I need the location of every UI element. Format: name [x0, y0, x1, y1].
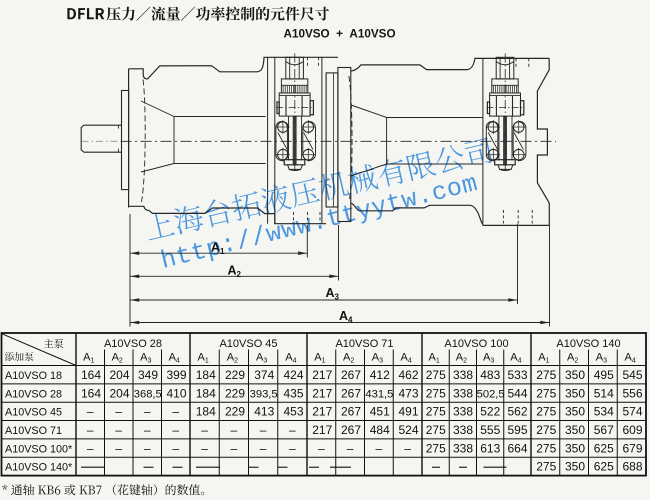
svg-text:275: 275: [536, 423, 556, 437]
svg-text:688: 688: [622, 460, 642, 474]
svg-text:338: 338: [453, 441, 473, 455]
svg-text:A10VSO 45: A10VSO 45: [219, 338, 277, 350]
svg-text:399: 399: [166, 368, 186, 382]
svg-text:–: –: [172, 423, 179, 437]
svg-text:217: 217: [312, 423, 332, 437]
svg-text:–: –: [115, 441, 122, 455]
svg-text:613: 613: [480, 441, 500, 455]
svg-text:A10VSO 18: A10VSO 18: [5, 370, 62, 382]
svg-text:483: 483: [480, 368, 500, 382]
svg-text:–: –: [318, 441, 325, 455]
svg-text:A10VSO + A10VSO: A10VSO + A10VSO: [284, 27, 396, 40]
svg-text:–: –: [115, 423, 122, 437]
svg-text:229: 229: [225, 386, 245, 400]
svg-text:A10VSO 45: A10VSO 45: [5, 407, 62, 419]
svg-text:–: –: [87, 405, 94, 419]
svg-text:204: 204: [109, 386, 129, 400]
svg-text:555: 555: [480, 423, 500, 437]
svg-text:413: 413: [254, 405, 274, 419]
svg-text:184: 184: [196, 405, 216, 419]
svg-text:453: 453: [283, 405, 303, 419]
svg-text:350: 350: [565, 386, 585, 400]
svg-text:451: 451: [370, 405, 390, 419]
svg-text:349: 349: [138, 368, 158, 382]
svg-text:267: 267: [341, 423, 361, 437]
svg-text:–: –: [231, 423, 238, 437]
svg-text:–: –: [404, 441, 411, 455]
svg-text:–: –: [376, 441, 383, 455]
svg-text:556: 556: [622, 386, 642, 400]
svg-text:–: –: [260, 441, 267, 455]
svg-text:424: 424: [283, 368, 303, 382]
svg-text:514: 514: [594, 386, 614, 400]
svg-text:217: 217: [312, 368, 332, 382]
svg-text:484: 484: [370, 423, 390, 437]
svg-text:–: –: [201, 441, 208, 455]
svg-text:–: –: [87, 441, 94, 455]
svg-text:–: –: [172, 441, 179, 455]
svg-text:350: 350: [565, 405, 585, 419]
svg-text:350: 350: [565, 423, 585, 437]
svg-text:374: 374: [254, 368, 274, 382]
svg-text:533: 533: [507, 368, 527, 382]
svg-text:275: 275: [426, 441, 446, 455]
svg-text:275: 275: [536, 460, 556, 474]
svg-text:502,5: 502,5: [477, 388, 505, 400]
svg-text:–: –: [87, 423, 94, 437]
svg-text:–: –: [144, 441, 151, 455]
svg-text:A10VSO 28: A10VSO 28: [5, 388, 62, 400]
svg-text:164: 164: [81, 386, 101, 400]
svg-text:625: 625: [594, 441, 614, 455]
svg-text:275: 275: [426, 405, 446, 419]
svg-text:267: 267: [341, 386, 361, 400]
svg-text:338: 338: [453, 405, 473, 419]
svg-text:275: 275: [536, 386, 556, 400]
svg-text:A10VSO 71: A10VSO 71: [5, 425, 62, 437]
svg-text:267: 267: [341, 405, 361, 419]
svg-text:275: 275: [426, 423, 446, 437]
svg-text:368,5: 368,5: [134, 388, 162, 400]
svg-text:275: 275: [426, 386, 446, 400]
svg-text:A10VSO 100: A10VSO 100: [444, 338, 508, 350]
svg-text:544: 544: [507, 386, 527, 400]
svg-text:–: –: [231, 441, 238, 455]
svg-text:522: 522: [480, 405, 500, 419]
svg-text:–: –: [115, 405, 122, 419]
svg-text:217: 217: [312, 386, 332, 400]
svg-text:275: 275: [536, 405, 556, 419]
svg-text:609: 609: [622, 423, 642, 437]
svg-text:679: 679: [622, 441, 642, 455]
svg-text:545: 545: [622, 368, 642, 382]
svg-text:473: 473: [398, 386, 418, 400]
svg-text:491: 491: [398, 405, 418, 419]
svg-text:A10VSO 140*: A10VSO 140*: [5, 462, 73, 474]
svg-text:350: 350: [565, 368, 585, 382]
svg-text:267: 267: [341, 368, 361, 382]
svg-text:338: 338: [453, 386, 473, 400]
svg-text:A10VSO 28: A10VSO 28: [104, 338, 162, 350]
svg-text:567: 567: [594, 423, 614, 437]
svg-text:229: 229: [225, 405, 245, 419]
svg-text:–: –: [260, 423, 267, 437]
svg-text:562: 562: [507, 405, 527, 419]
svg-text:184: 184: [196, 386, 216, 400]
svg-text:393,5: 393,5: [250, 388, 278, 400]
svg-text:595: 595: [507, 423, 527, 437]
svg-text:275: 275: [536, 441, 556, 455]
svg-text:–: –: [172, 405, 179, 419]
svg-text:A10VSO 71: A10VSO 71: [335, 338, 393, 350]
svg-text:184: 184: [196, 368, 216, 382]
svg-text:534: 534: [594, 405, 614, 419]
svg-text:350: 350: [565, 441, 585, 455]
svg-text:204: 204: [109, 368, 129, 382]
svg-text:229: 229: [225, 368, 245, 382]
svg-text:A10VSO 100*: A10VSO 100*: [5, 443, 73, 455]
svg-text:625: 625: [594, 460, 614, 474]
svg-text:217: 217: [312, 405, 332, 419]
svg-text:338: 338: [453, 368, 473, 382]
svg-text:574: 574: [622, 405, 642, 419]
svg-text:–: –: [144, 423, 151, 437]
svg-text:338: 338: [453, 423, 473, 437]
svg-text:664: 664: [507, 441, 527, 455]
svg-text:431,5: 431,5: [365, 388, 393, 400]
svg-text:–: –: [289, 423, 296, 437]
svg-text:524: 524: [398, 423, 418, 437]
svg-text:–: –: [347, 441, 354, 455]
svg-text:495: 495: [594, 368, 614, 382]
svg-text:350: 350: [565, 460, 585, 474]
svg-text:–: –: [144, 405, 151, 419]
svg-text:–: –: [289, 441, 296, 455]
svg-text:412: 412: [370, 368, 390, 382]
svg-text:A10VSO 140: A10VSO 140: [556, 338, 620, 350]
svg-text:275: 275: [426, 368, 446, 382]
svg-text:275: 275: [536, 368, 556, 382]
svg-text:462: 462: [398, 368, 418, 382]
svg-text:435: 435: [283, 386, 303, 400]
svg-text:–: –: [201, 423, 208, 437]
svg-text:410: 410: [166, 386, 186, 400]
svg-text:164: 164: [81, 368, 101, 382]
